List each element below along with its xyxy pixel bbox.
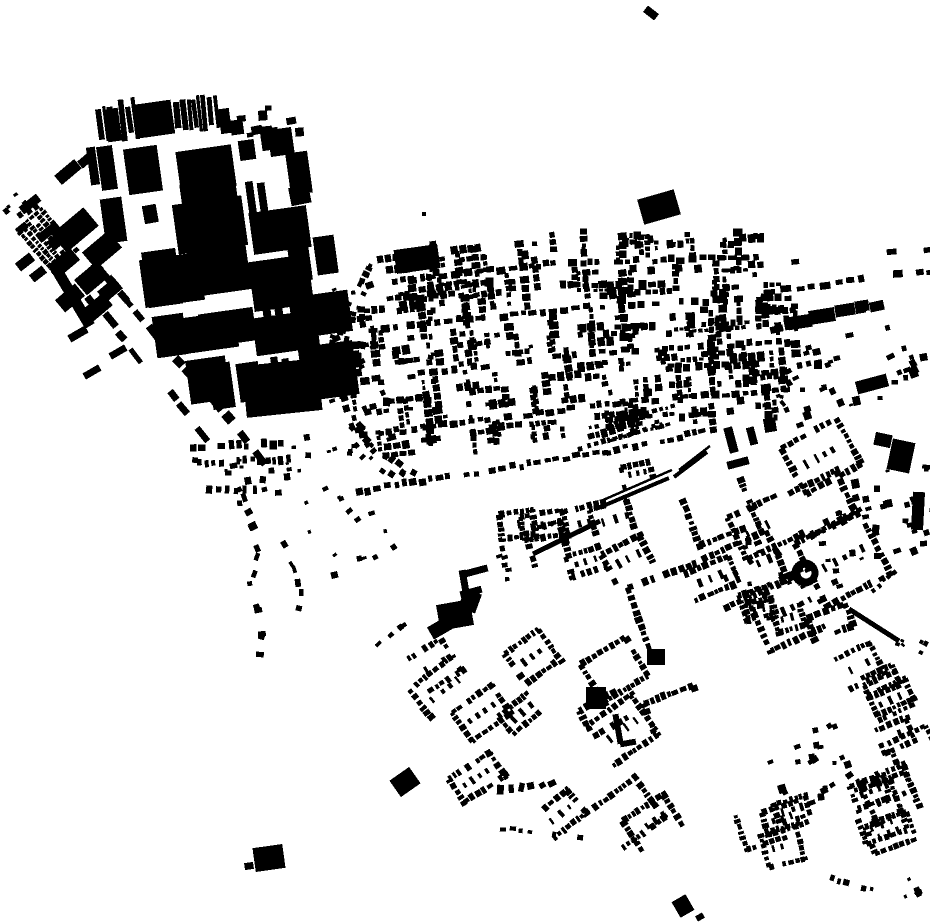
southeast-bottom-row	[829, 874, 873, 892]
village-lane-chain-2	[280, 540, 304, 612]
estate-vertical-lane	[496, 537, 512, 581]
industrial-south-fringe-row-2	[197, 454, 291, 467]
map-viewport	[0, 0, 930, 924]
southeast-diagonal-dash-row	[871, 569, 898, 593]
figure-ground-svg	[0, 0, 930, 924]
estate-south-row	[500, 826, 584, 840]
zigzag-house-row	[497, 779, 557, 795]
industrial-south-fringe-row-3	[206, 485, 257, 494]
southeast-estate-north-combs	[833, 640, 930, 776]
northeast-row-solid-blocks	[787, 299, 870, 330]
estate-northwest-dot-chain	[375, 622, 407, 647]
northeast-solid-bar	[855, 374, 889, 395]
southeast-estate-mid-scatter	[767, 722, 867, 806]
south-road-row-2	[606, 428, 706, 456]
circus-south-blocks	[736, 582, 810, 637]
estate-west-fringe-scatter	[304, 486, 398, 579]
fabric-street-n2	[568, 254, 759, 267]
northeast-terrace-row-1	[748, 247, 930, 268]
industrial-north-scatter	[230, 105, 305, 140]
civic-irregular-blocks	[389, 565, 488, 798]
mid-gap-scatter	[292, 434, 345, 534]
southeast-estate-east-combs	[847, 760, 924, 856]
southeast-bottom-scatter	[903, 877, 922, 899]
northeast-estate-scatter	[785, 325, 928, 421]
industrial-striped-terrace-b	[173, 95, 221, 132]
southeast-estate-west-combs	[734, 792, 813, 870]
estate-northwest-blocks	[496, 458, 657, 580]
southeast-strip-tail	[895, 639, 929, 656]
east-mid-solid-blocks	[873, 432, 925, 530]
estate-southwest-blocks	[406, 627, 685, 853]
northeast-terrace-row-2	[763, 269, 930, 296]
